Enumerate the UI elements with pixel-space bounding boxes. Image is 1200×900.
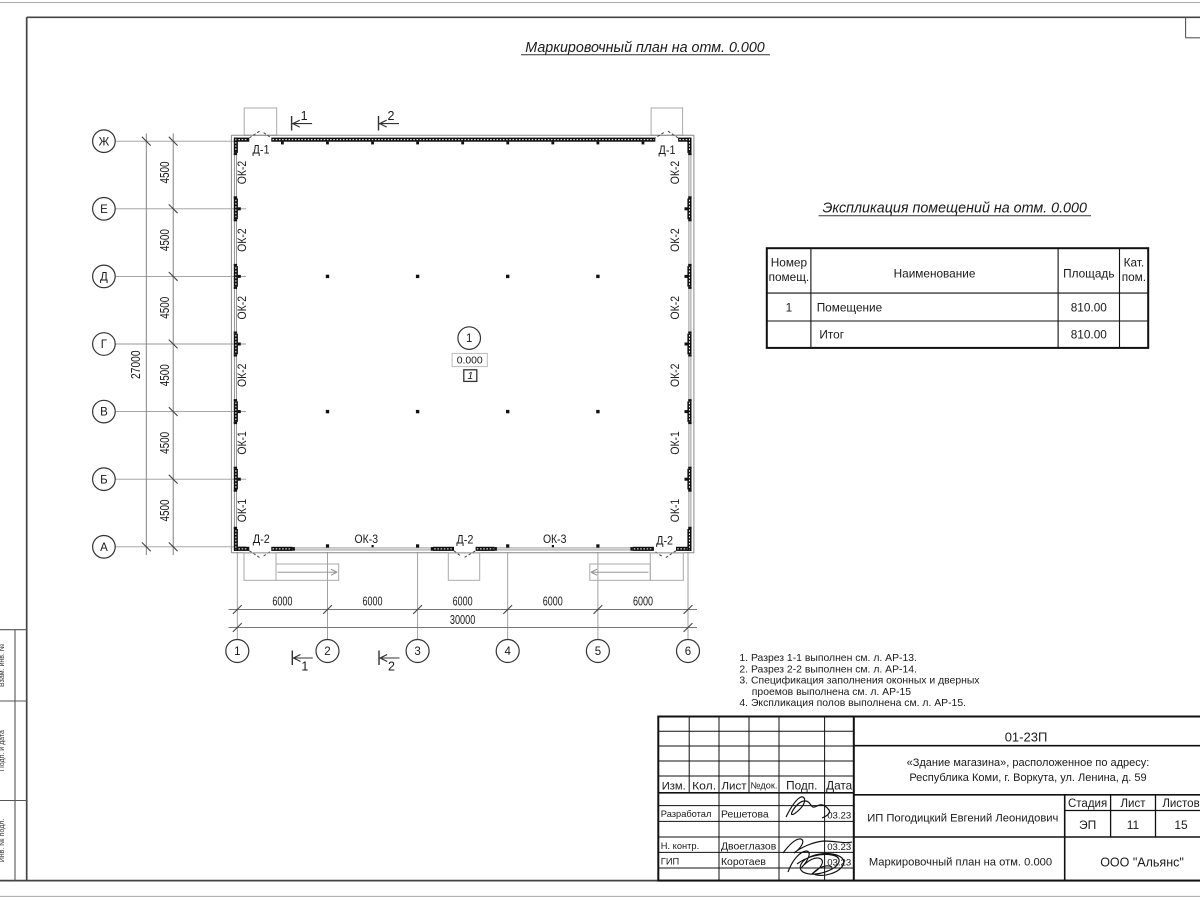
svg-text:Г: Г: [101, 339, 108, 351]
svg-text:Д: Д: [100, 272, 108, 284]
svg-text:ОК-1: ОК-1: [668, 499, 682, 523]
svg-text:6000: 6000: [272, 594, 292, 609]
svg-text:Д-2: Д-2: [456, 532, 473, 546]
svg-text:Экспликация помещений на отм.: Экспликация помещений на отм. 0.000: [822, 201, 1086, 217]
svg-text:№док.: №док.: [751, 780, 778, 790]
svg-text:6000: 6000: [363, 594, 383, 609]
svg-text:ООО "Альянс": ООО "Альянс": [1100, 856, 1184, 870]
svg-text:Разработал: Разработал: [661, 809, 712, 819]
svg-text:Номер: Номер: [771, 256, 808, 270]
svg-text:Д-2: Д-2: [253, 532, 270, 546]
svg-text:Маркировочный план на отм. 0.0: Маркировочный план на отм. 0.000: [869, 857, 1052, 869]
svg-text:3. Спецификация заполнения око: 3. Спецификация заполнения оконных и две…: [739, 675, 980, 687]
svg-text:3: 3: [414, 646, 420, 658]
svg-text:ОК-1: ОК-1: [235, 431, 249, 455]
svg-text:4. Экспликация полов выполнена: 4. Экспликация полов выполнена см. л. АР…: [739, 698, 966, 709]
svg-text:2: 2: [388, 109, 395, 123]
svg-text:ОК-2: ОК-2: [235, 296, 249, 320]
svg-text:03.23: 03.23: [827, 810, 851, 821]
svg-text:Д-2: Д-2: [656, 533, 673, 547]
svg-text:ИП Погодицкий Евгений Леонидов: ИП Погодицкий Евгений Леонидович: [867, 813, 1058, 825]
svg-text:Решетова: Решетова: [721, 810, 769, 821]
svg-text:6000: 6000: [633, 594, 653, 609]
svg-text:30000: 30000: [450, 612, 476, 627]
svg-text:4500: 4500: [157, 229, 172, 251]
svg-text:1: 1: [301, 660, 308, 674]
svg-text:5: 5: [595, 646, 601, 658]
svg-text:4: 4: [504, 646, 511, 658]
svg-text:11: 11: [1127, 818, 1140, 832]
svg-text:Лист: Лист: [1121, 798, 1147, 810]
svg-text:ГИП: ГИП: [661, 857, 679, 867]
svg-text:Двоеглазов: Двоеглазов: [721, 841, 777, 852]
svg-text:Изм.: Изм.: [662, 780, 686, 792]
svg-text:ОК-2: ОК-2: [235, 161, 249, 185]
svg-text:Дата: Дата: [826, 778, 853, 792]
svg-text:Площадь: Площадь: [1063, 267, 1114, 281]
svg-text:2: 2: [388, 660, 395, 674]
svg-text:Е: Е: [100, 204, 108, 216]
svg-text:ОК-2: ОК-2: [235, 228, 249, 252]
svg-text:Д-1: Д-1: [253, 142, 270, 156]
svg-text:2. Разрез 2-2 выполнен см. л.: 2. Разрез 2-2 выполнен см. л. АР-14.: [739, 664, 917, 675]
svg-text:ОК-2: ОК-2: [668, 161, 682, 185]
svg-text:03.23: 03.23: [827, 842, 851, 853]
svg-text:ОК-2: ОК-2: [668, 364, 682, 388]
svg-text:ОК-3: ОК-3: [355, 532, 379, 546]
svg-text:Н. контр.: Н. контр.: [661, 841, 699, 851]
svg-text:27000: 27000: [128, 350, 143, 379]
svg-text:0.000: 0.000: [457, 355, 483, 366]
svg-text:В: В: [100, 407, 108, 419]
svg-text:Республика Коми, г. Воркута, у: Республика Коми, г. Воркута, ул. Ленина,…: [909, 772, 1146, 784]
svg-text:ОК-3: ОК-3: [543, 532, 567, 546]
svg-text:ОК-2: ОК-2: [235, 364, 249, 388]
svg-text:Кол.: Кол.: [692, 780, 716, 792]
svg-text:1: 1: [234, 646, 240, 658]
svg-text:ОК-2: ОК-2: [668, 296, 682, 320]
svg-text:4500: 4500: [157, 500, 172, 522]
svg-text:1. Разрез 1-1 выполнен см. л.: 1. Разрез 1-1 выполнен см. л. АР-13.: [739, 653, 917, 664]
svg-text:1: 1: [786, 301, 793, 315]
svg-text:4500: 4500: [157, 364, 172, 386]
svg-text:проемов выполнена см. л. АР-15: проемов выполнена см. л. АР-15: [752, 687, 911, 698]
svg-text:ОК-1: ОК-1: [668, 431, 682, 455]
svg-text:Б: Б: [100, 474, 108, 486]
svg-text:2: 2: [324, 646, 330, 658]
svg-text:6000: 6000: [543, 594, 563, 609]
svg-text:Взам. инв. №: Взам. инв. №: [0, 644, 6, 687]
svg-text:1: 1: [301, 109, 308, 123]
svg-text:1: 1: [466, 333, 472, 345]
svg-text:Ж: Ж: [99, 136, 110, 148]
svg-text:6000: 6000: [453, 594, 473, 609]
svg-text:Д-1: Д-1: [659, 143, 676, 157]
svg-text:4500: 4500: [157, 162, 172, 184]
svg-text:4500: 4500: [157, 432, 172, 454]
svg-text:Маркировочный план на отм. 0.0: Маркировочный план на отм. 0.000: [525, 40, 765, 56]
svg-text:Итог: Итог: [819, 328, 844, 342]
svg-text:4500: 4500: [157, 297, 172, 319]
svg-text:ЭП: ЭП: [1079, 818, 1096, 832]
svg-text:ОК-2: ОК-2: [668, 228, 682, 252]
svg-text:Наименование: Наименование: [894, 267, 976, 281]
svg-text:810.00: 810.00: [1071, 328, 1108, 342]
svg-text:ОК-1: ОК-1: [235, 499, 249, 523]
svg-text:Листов: Листов: [1162, 798, 1199, 810]
svg-text:пом.: пом.: [1122, 270, 1146, 284]
svg-text:«Здание магазина», расположенн: «Здание магазина», расположенное по адре…: [907, 757, 1150, 769]
svg-text:Коротаев: Коротаев: [721, 857, 766, 868]
svg-text:помещ.: помещ.: [769, 270, 810, 284]
svg-text:1: 1: [467, 370, 473, 382]
svg-text:810.00: 810.00: [1071, 301, 1108, 315]
svg-text:Стадия: Стадия: [1068, 798, 1107, 810]
svg-text:Инв. № подл.: Инв. № подл.: [0, 819, 6, 863]
svg-text:А: А: [100, 542, 108, 554]
svg-text:01-23П: 01-23П: [1005, 730, 1048, 745]
svg-text:Кат.: Кат.: [1124, 256, 1145, 270]
svg-text:Подп.: Подп.: [786, 778, 817, 792]
svg-text:Подп. и дата: Подп. и дата: [0, 730, 6, 771]
svg-text:6: 6: [685, 646, 691, 658]
svg-text:Лист: Лист: [722, 780, 747, 792]
svg-text:Помещение: Помещение: [817, 301, 883, 315]
svg-text:15: 15: [1174, 818, 1188, 832]
